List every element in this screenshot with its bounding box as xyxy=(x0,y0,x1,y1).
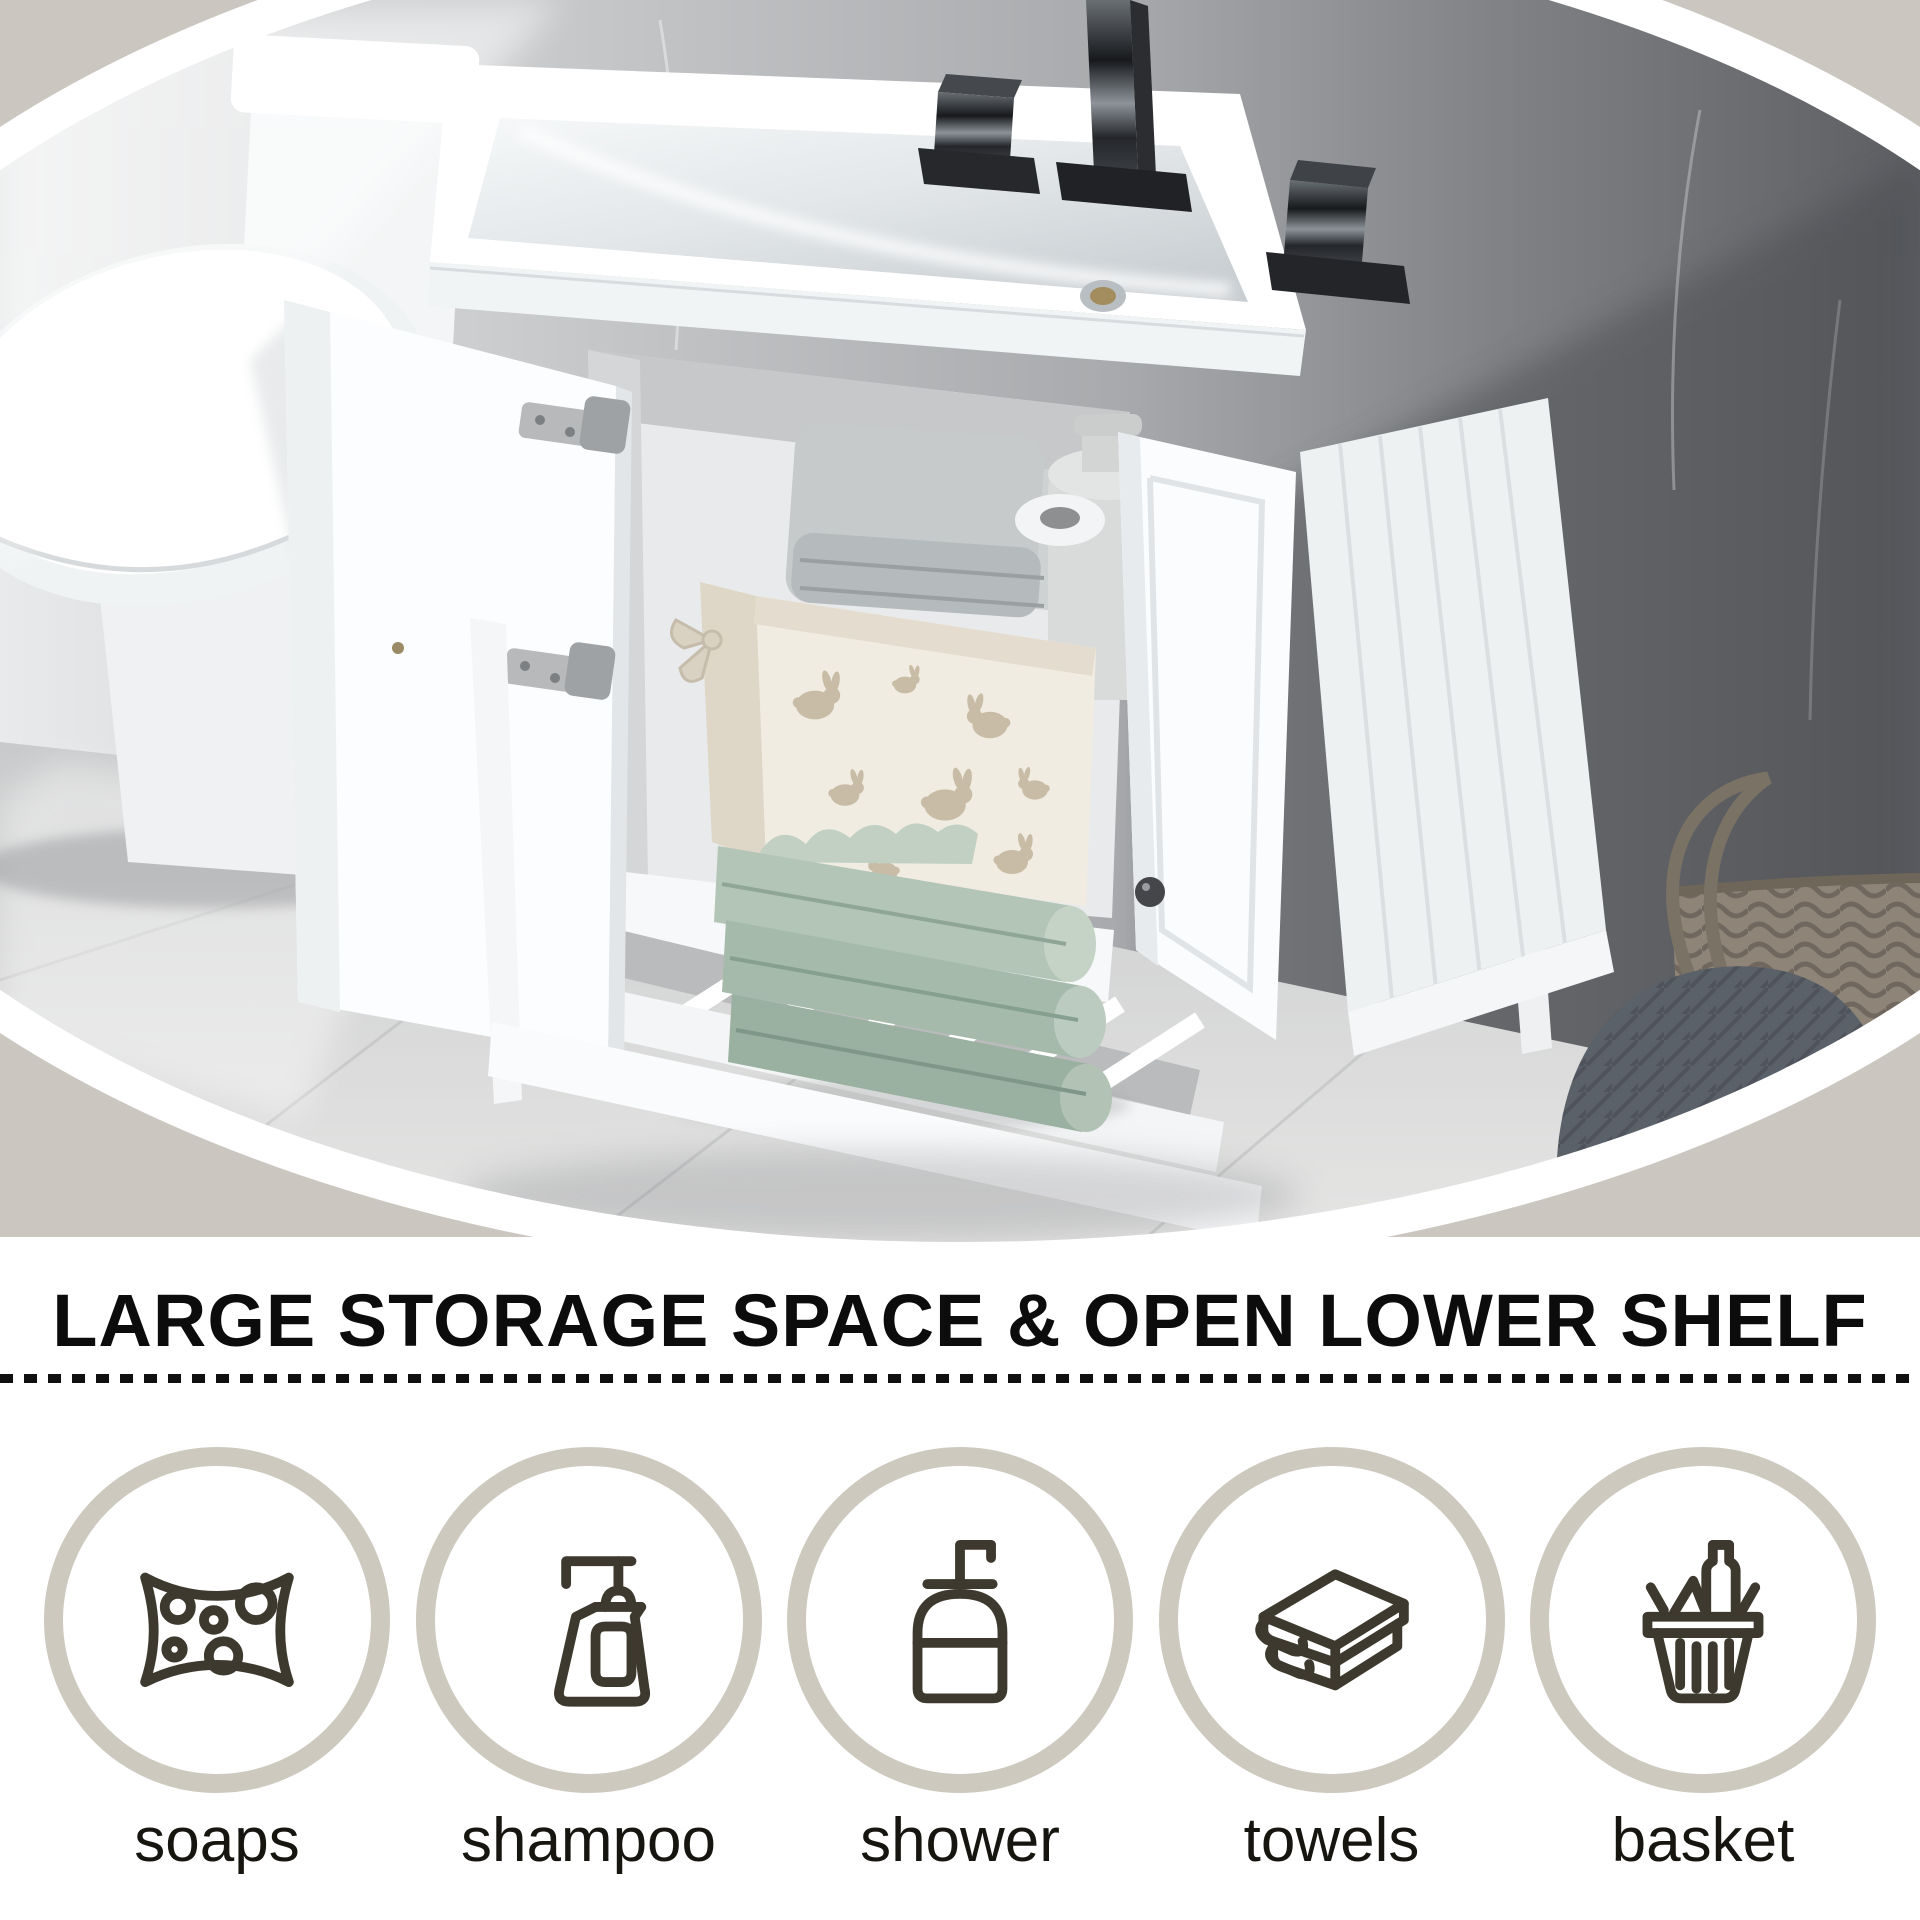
feature-label: shampoo xyxy=(461,1807,716,1875)
shampoo-pump-icon xyxy=(491,1522,687,1718)
feature-shower: shower xyxy=(787,1447,1133,1875)
feature-towels: towels xyxy=(1159,1447,1505,1875)
feature-circle xyxy=(1530,1447,1876,1793)
folded-towel-icon xyxy=(1234,1522,1430,1718)
door-knob xyxy=(1135,877,1165,907)
product-infographic: LARGE STORAGE SPACE & OPEN LOWER SHELF s… xyxy=(0,0,1920,1920)
bathroom-scene-illustration xyxy=(0,0,1920,1260)
feature-label: basket xyxy=(1612,1807,1795,1875)
feature-label: shower xyxy=(860,1807,1060,1875)
sponge-icon xyxy=(119,1522,315,1718)
headline: LARGE STORAGE SPACE & OPEN LOWER SHELF xyxy=(0,1284,1920,1358)
feature-icon-row: soaps shampoo xyxy=(0,1383,1920,1875)
feature-circle xyxy=(1159,1447,1505,1793)
feature-basket: basket xyxy=(1530,1447,1876,1875)
door-screw xyxy=(392,642,404,654)
cabinet-door-right xyxy=(1118,432,1296,1040)
product-photo xyxy=(0,0,1920,1260)
dotted-divider xyxy=(0,1374,1920,1383)
cabinet-door-left xyxy=(284,300,632,1064)
shopping-basket-icon xyxy=(1605,1522,1801,1718)
feature-circle xyxy=(44,1447,390,1793)
photo-content xyxy=(0,0,1920,1260)
feature-label: soaps xyxy=(134,1807,299,1875)
feature-shampoo: shampoo xyxy=(416,1447,762,1875)
feature-circle xyxy=(787,1447,1133,1793)
feature-label: towels xyxy=(1244,1807,1420,1875)
feature-soaps: soaps xyxy=(44,1447,390,1875)
shower-gel-icon xyxy=(862,1522,1058,1718)
feature-circle xyxy=(416,1447,762,1793)
